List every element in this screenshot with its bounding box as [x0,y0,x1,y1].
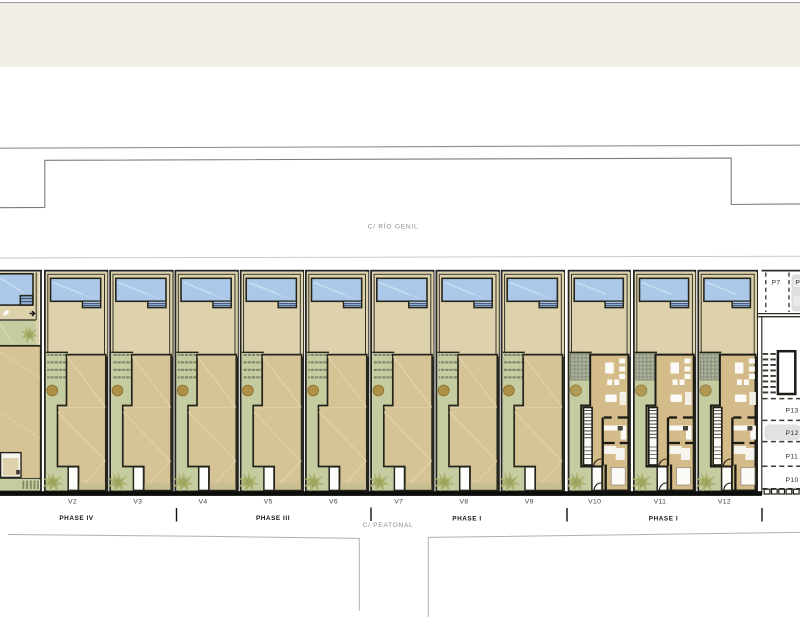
svg-text:P12: P12 [786,430,799,437]
svg-text:V11: V11 [654,499,667,506]
svg-text:P7: P7 [772,280,781,287]
svg-text:V7: V7 [394,499,403,506]
svg-text:PHASE I: PHASE I [649,516,678,523]
svg-text:P10: P10 [786,477,799,484]
svg-text:PHASE I: PHASE I [452,516,481,523]
svg-text:P13: P13 [786,408,799,415]
svg-text:V2: V2 [68,499,77,506]
svg-text:V3: V3 [133,499,142,506]
svg-text:V10: V10 [588,499,601,506]
svg-text:V6: V6 [329,499,338,506]
svg-text:C/ PEATONAL: C/ PEATONAL [363,522,414,529]
svg-text:PHASE III: PHASE III [256,515,290,522]
svg-text:P11: P11 [786,454,799,461]
svg-text:V9: V9 [525,499,534,506]
svg-text:V4: V4 [198,499,207,506]
svg-text:V12: V12 [718,499,731,506]
svg-text:V5: V5 [264,499,273,506]
svg-text:C/ RÍO GENIL: C/ RÍO GENIL [368,221,419,230]
svg-text:PHASE IV: PHASE IV [59,515,93,522]
svg-text:P8: P8 [795,280,800,287]
svg-text:V8: V8 [459,499,468,506]
